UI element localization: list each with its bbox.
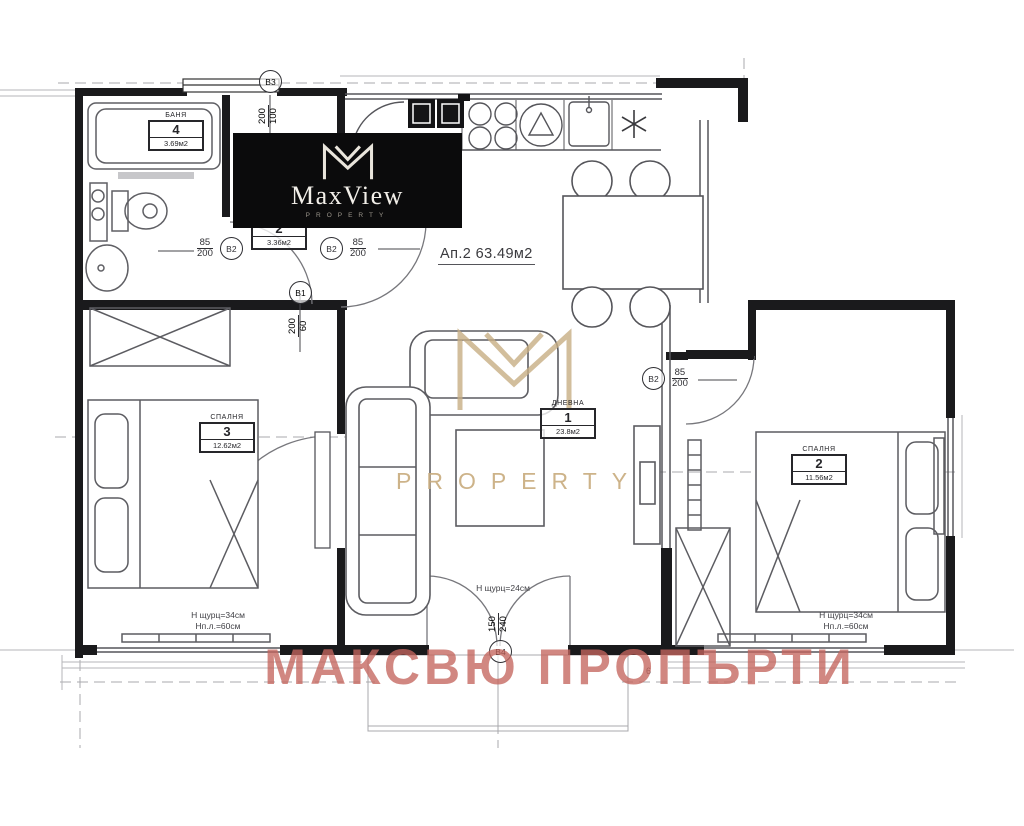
room-number: 2 [793,456,845,472]
door-label-hall-living: В2 85200 [320,237,369,260]
room-area: 3.36м2 [253,237,305,248]
logo-sub-text: PROPERTY [306,212,390,219]
sofa-icon [346,387,430,615]
property-watermark: PROPERTY [396,468,642,495]
maxview-logo-plate: MaxView PROPERTY [233,133,462,228]
bedroom2-door-arc [686,356,754,424]
room-area: 23.8м2 [542,426,594,437]
chair-icon [572,287,612,327]
room-name: БАНЯ [165,112,187,119]
kitchen-opening-size: 20060 [288,306,312,346]
chair-icon [630,287,670,327]
bedroom3-furniture [88,308,270,642]
radiator-icon [688,440,701,530]
bottom-brand-watermark: МАКСВЮ ПРОПЪРТИ [150,638,970,696]
kitchen-sink-icon [569,96,609,146]
room-label-living: ДНЕВНА 1 23.8м2 [523,400,613,439]
door-mark: В2 [642,367,665,390]
towel-radiator-icon [90,183,107,241]
room-number: 1 [542,410,594,426]
door-label-bedroom2: В2 85200 [642,367,691,390]
room-area: 11.56м2 [793,472,845,483]
window-top-mark: В3 [259,70,282,93]
door-size: 85200 [194,238,216,259]
note-left: Н щурц=34смНп.л.=60см [138,610,298,631]
note-center: Н щурц=24см [448,583,558,594]
bath-shelf [118,172,194,179]
window-top-size: 200100 [258,96,282,136]
apartment-title: Ап.2 63.49м2 [438,246,535,265]
dishwasher-icon [520,104,562,146]
room-label-bath: БАНЯ 4 3.69м2 [131,112,221,151]
room-name: СПАЛНЯ [802,446,835,453]
washbasin-icon [86,245,128,291]
dining-table-icon [563,196,703,289]
door-mark: В2 [320,237,343,260]
room-name: СПАЛНЯ [210,414,243,421]
door-mark: В2 [220,237,243,260]
fridge-asterisk-icon [622,110,646,138]
wardrobe-icon [90,308,230,366]
room-label-bedroom3: СПАЛНЯ 3 12.62м2 [182,414,272,453]
chair-icon [630,161,670,201]
dining-set [563,161,703,327]
toilet-icon [112,191,167,231]
bedroom2-door-leaf [686,350,754,359]
room-number: 3 [201,424,253,440]
cooktop-icon [469,103,517,149]
hall-living-door-arc [341,222,426,307]
logo-brand-text: MaxView [291,183,404,209]
door-size: 85200 [347,238,369,259]
door-label-hall-bath: 85200 В2 [194,237,243,260]
note-right: Н щурц=34смНп.л.=60см [766,610,926,631]
room-name: ДНЕВНА [552,400,584,407]
chair-icon [572,161,612,201]
room-label-bedroom2: СПАЛНЯ 2 11.56м2 [774,446,864,485]
oven-icon [408,94,470,128]
door-size: 85200 [669,368,691,389]
wardrobe-icon [676,528,730,646]
floorplan-page: Ап.2 63.49м2 БАНЯ 4 3.69м2 2 3.36м2 ДНЕВ… [0,0,1024,826]
bedroom3-door-leaf [315,432,330,548]
room-area: 12.62м2 [201,440,253,451]
maxview-monogram-icon [321,143,375,181]
room-area: 3.69м2 [150,138,202,149]
kitchen-opening-mark: В1 [289,281,312,304]
room-number: 4 [150,122,202,138]
